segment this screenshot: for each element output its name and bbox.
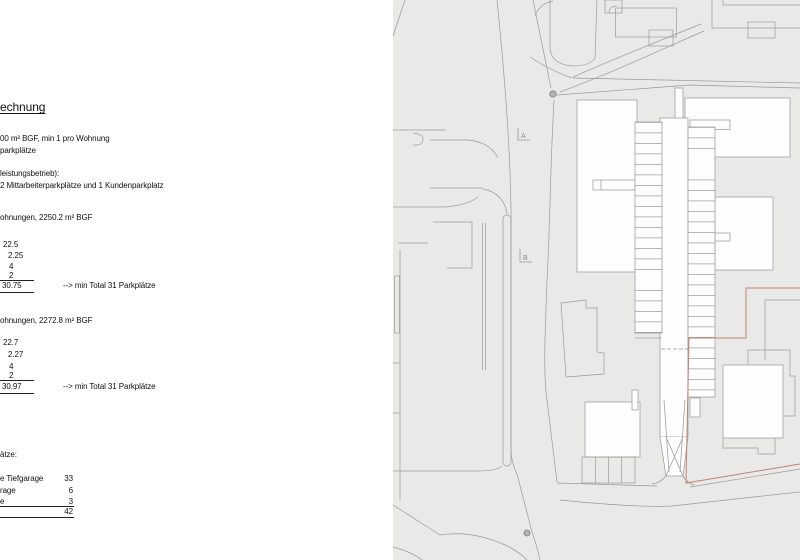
block2-value-1: 22.7 <box>3 338 18 348</box>
calc-rule-line-3: leistungsbetrieb): <box>0 169 59 179</box>
summary-row-label: e Tiefgarage <box>0 474 43 484</box>
summary-row-tiefgarage: e Tiefgarage 33 <box>0 474 73 484</box>
calc-rule-line-1: 00 m² BGF, min 1 pro Wohnung <box>0 134 110 144</box>
summary-row-value: 33 <box>64 474 73 484</box>
building-southeast <box>723 365 783 438</box>
block2-value-2: 2.27 <box>8 350 23 360</box>
calc-title: echnung <box>0 100 45 114</box>
junction-symbol-top <box>550 91 556 97</box>
summary-total: 42 <box>0 507 73 517</box>
summary-row-garage: rage 6 <box>0 486 73 496</box>
block1-total: 30.75 <box>2 281 22 291</box>
summary-total-rule <box>0 517 74 518</box>
calc-rule-line-4: 2 Mittarbeiterparkplätze und 1 Kundenpar… <box>0 181 164 191</box>
connector-west <box>593 180 635 190</box>
block2-note: --> min Total 31 Parkplätze <box>63 382 156 392</box>
block1-value-1: 22.5 <box>3 240 18 250</box>
garage-entry-stub <box>675 88 683 120</box>
block1-value-2: 2.25 <box>8 251 23 261</box>
block2-heading: ohnungen, 2272.8 m² BGF <box>0 316 92 326</box>
connector-east <box>715 233 730 241</box>
summary-heading: ätze: <box>0 450 17 460</box>
summary-row-label: rage <box>0 486 16 496</box>
garage-aisle <box>660 118 688 437</box>
calc-rule-line-2: parkplätze <box>0 146 36 156</box>
block2-sum-rule <box>0 380 34 381</box>
cad-sheet: A B echnung 00 m² BGF, min 1 pro Wohnung… <box>0 0 800 560</box>
block1-note: --> min Total 31 Parkplätze <box>63 281 156 291</box>
plan-background <box>393 0 800 560</box>
block1-total-rule <box>0 292 34 293</box>
block1-heading: ohnungen, 2250.2 m² BGF <box>0 213 92 223</box>
junction-symbol-bottom <box>524 530 530 536</box>
block2-total: 30.97 <box>2 382 22 392</box>
block2-total-rule <box>0 393 34 394</box>
section-marker-b: B <box>523 255 528 262</box>
parking-calculation-panel: echnung 00 m² BGF, min 1 pro Wohnung par… <box>0 0 393 560</box>
section-marker-a: A <box>521 133 526 140</box>
summary-row-value: 6 <box>69 486 73 496</box>
